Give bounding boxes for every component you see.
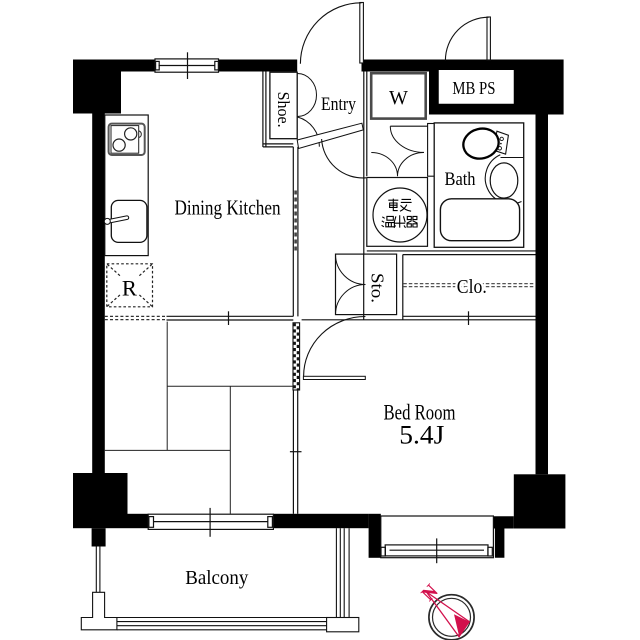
svg-text:MB PS: MB PS — [452, 78, 495, 98]
svg-text:Entry: Entry — [321, 94, 356, 115]
svg-text:Bath: Bath — [445, 169, 476, 190]
svg-text:Balcony: Balcony — [185, 567, 248, 589]
svg-text:W: W — [389, 87, 408, 109]
svg-text:Sto.: Sto. — [368, 273, 388, 303]
svg-text:5.4J: 5.4J — [399, 420, 444, 450]
svg-text:Dining Kitchen: Dining Kitchen — [175, 195, 281, 219]
svg-text:Clo.: Clo. — [457, 277, 487, 298]
svg-text:R: R — [122, 276, 137, 301]
svg-text:Shoe.: Shoe. — [274, 92, 293, 128]
